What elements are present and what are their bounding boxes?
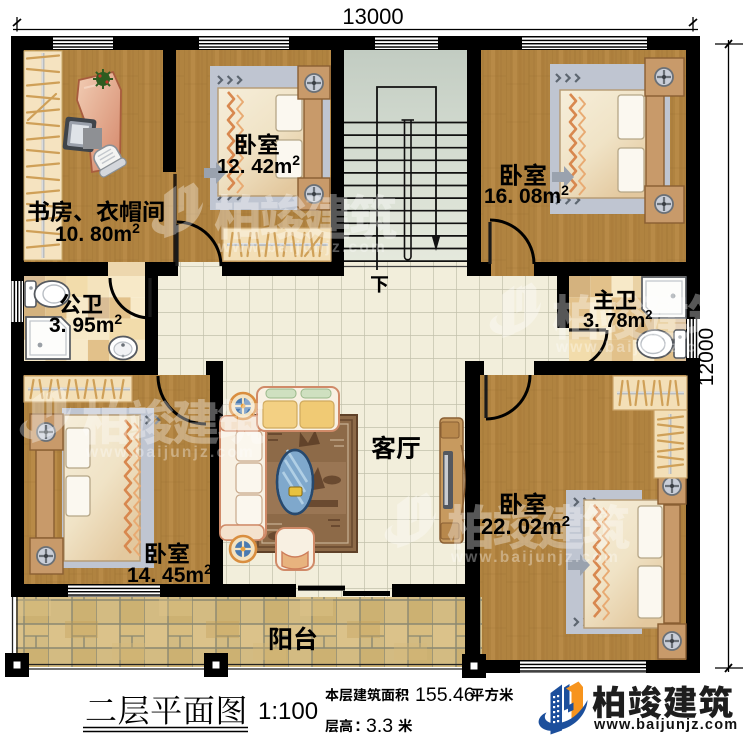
svg-text:3. 95m2: 3. 95m2 [49,311,122,337]
svg-text:www.baijunjz.com: www.baijunjz.com [85,444,255,461]
svg-text:14. 45m2: 14. 45m2 [127,561,212,587]
svg-text:1:100: 1:100 [258,698,318,725]
svg-text:3.3: 3.3 [366,715,393,737]
svg-text:www.baijunjz.com: www.baijunjz.com [217,239,387,256]
svg-text::: : [404,684,410,704]
svg-text:13000: 13000 [342,4,403,29]
svg-text:12. 42m2: 12. 42m2 [217,152,300,178]
svg-text:www.baijunjz.com: www.baijunjz.com [593,717,738,733]
svg-text:16. 08m2: 16. 08m2 [484,182,569,208]
svg-text:3. 78m2: 3. 78m2 [583,307,653,332]
svg-text:12000: 12000 [695,328,718,386]
svg-text:www.baijunjz.com: www.baijunjz.com [450,549,620,566]
svg-text:155.46: 155.46 [415,684,475,706]
svg-text:10. 80m2: 10. 80m2 [55,220,140,246]
svg-text:22. 02m2: 22. 02m2 [481,513,570,539]
svg-text::: : [355,715,361,735]
